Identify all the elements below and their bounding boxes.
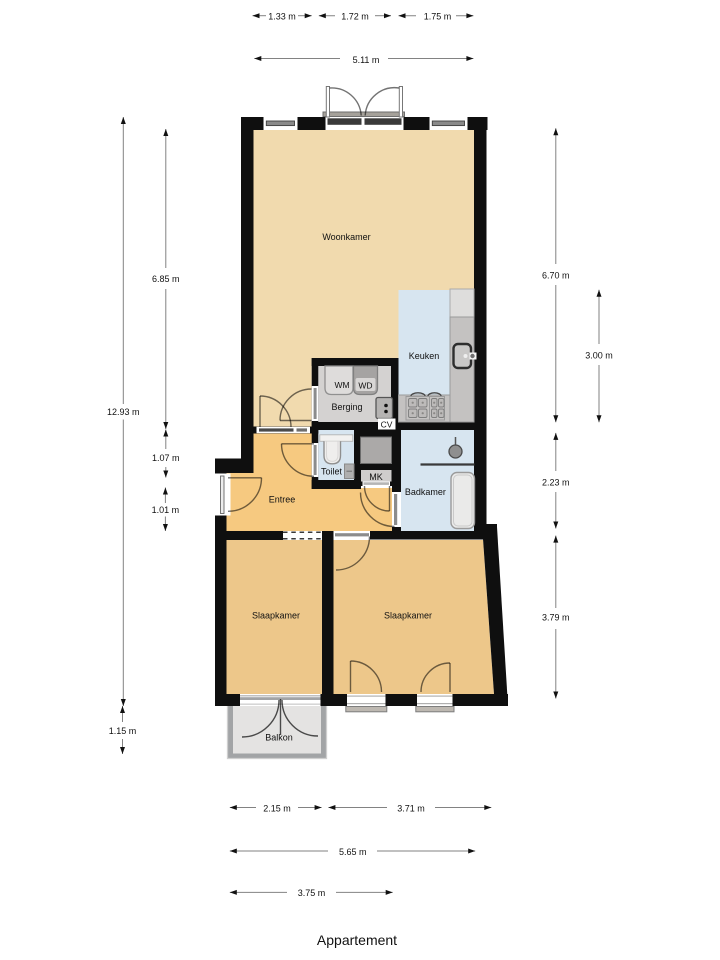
svg-text:1.01 m: 1.01 m: [152, 505, 180, 515]
svg-text:6.85 m: 6.85 m: [152, 274, 180, 284]
svg-text:Appartement: Appartement: [317, 932, 397, 948]
svg-text:Entree: Entree: [269, 495, 296, 505]
svg-text:Keuken: Keuken: [409, 351, 440, 361]
svg-text:Balkon: Balkon: [265, 733, 293, 743]
svg-text:3.71 m: 3.71 m: [397, 803, 425, 813]
svg-text:1.15 m: 1.15 m: [109, 726, 137, 736]
svg-text:Badkamer: Badkamer: [405, 487, 446, 497]
svg-text:12.93 m: 12.93 m: [107, 407, 140, 417]
svg-text:WD: WD: [358, 381, 372, 391]
svg-text:Slaapkamer: Slaapkamer: [384, 611, 432, 621]
svg-text:3.00 m: 3.00 m: [585, 351, 613, 361]
svg-text:Berging: Berging: [331, 402, 362, 412]
svg-text:Toilet: Toilet: [321, 467, 343, 477]
svg-text:6.70 m: 6.70 m: [542, 271, 570, 281]
svg-text:Woonkamer: Woonkamer: [322, 232, 370, 242]
svg-text:Slaapkamer: Slaapkamer: [252, 611, 300, 621]
svg-text:WM: WM: [334, 380, 349, 390]
svg-text:1.07 m: 1.07 m: [152, 453, 180, 463]
svg-text:1.72 m: 1.72 m: [341, 12, 369, 22]
svg-text:1.33 m: 1.33 m: [268, 12, 296, 22]
svg-text:3.75 m: 3.75 m: [298, 888, 326, 898]
svg-text:3.79 m: 3.79 m: [542, 613, 570, 623]
svg-text:5.11 m: 5.11 m: [353, 55, 380, 65]
svg-text:5.65 m: 5.65 m: [339, 847, 367, 857]
svg-text:2.23 m: 2.23 m: [542, 478, 570, 488]
svg-text:2.15 m: 2.15 m: [263, 803, 291, 813]
svg-text:CV: CV: [381, 420, 393, 430]
svg-text:MK: MK: [369, 472, 383, 482]
svg-text:1.75 m: 1.75 m: [424, 12, 452, 22]
